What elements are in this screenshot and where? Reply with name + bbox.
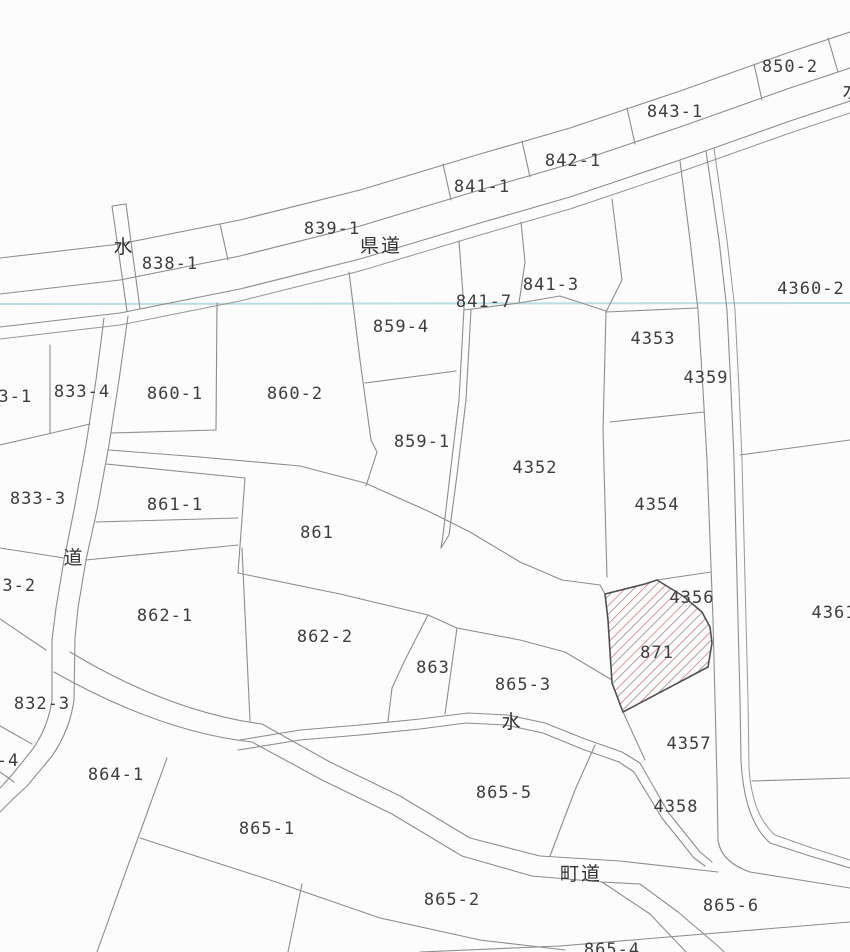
label-865-6: 865-6 [703, 896, 759, 916]
label-839-1: 839-1 [304, 219, 360, 239]
label-862-2: 862-2 [297, 627, 353, 647]
label-4358: 4358 [654, 797, 699, 817]
label-833-3: 833-3 [10, 489, 66, 509]
label-4352: 4352 [513, 458, 558, 478]
label-860-2: 860-2 [267, 384, 323, 404]
label-water-corner: 水 [842, 80, 850, 102]
label-841-7: 841-7 [456, 292, 512, 312]
label-833-1: 833-1 [0, 387, 32, 407]
label-833-2: 833-2 [0, 576, 36, 596]
label-865-4: 865-4 [584, 940, 640, 952]
label-kendo: 県道 [360, 235, 402, 257]
label-chodo: 町道 [560, 863, 602, 885]
label-841-3: 841-3 [523, 275, 579, 295]
cyan-reference-line [0, 303, 850, 304]
cadastral-map[interactable]: 850-2843-1842-1841-1839-1838-1水県道841-784… [0, 0, 850, 952]
label-water-channel: 水 [501, 711, 522, 733]
label-4359: 4359 [684, 368, 729, 388]
label-833-4: 833-4 [54, 382, 110, 402]
label-864-1: 864-1 [88, 765, 144, 785]
label-4356: 4356 [670, 588, 715, 608]
label-4361: 4361 [812, 603, 850, 623]
label-michi: 道 [63, 547, 84, 569]
label-841-1: 841-1 [454, 177, 510, 197]
label-4354: 4354 [635, 495, 680, 515]
label-4360-2: 4360-2 [777, 279, 844, 299]
label-859-1: 859-1 [394, 432, 450, 452]
label-4357: 4357 [667, 734, 712, 754]
label-859-4: 859-4 [373, 317, 429, 337]
map-background [0, 0, 850, 952]
label-865-3: 865-3 [495, 675, 551, 695]
label-865-5: 865-5 [476, 783, 532, 803]
label-water-strip: 水 [113, 236, 134, 258]
label-842-1: 842-1 [545, 151, 601, 171]
label-832-3: 832-3 [14, 694, 70, 714]
label-860-1: 860-1 [147, 384, 203, 404]
label-865-1: 865-1 [239, 819, 295, 839]
label-871: 871 [640, 643, 674, 663]
label-838-1: 838-1 [142, 254, 198, 274]
label-865-2: 865-2 [424, 890, 480, 910]
label-843-1: 843-1 [647, 102, 703, 122]
label-832-4: -4 [0, 751, 19, 771]
label-4353: 4353 [631, 329, 676, 349]
label-861: 861 [300, 523, 334, 543]
label-850-2: 850-2 [762, 57, 818, 77]
label-862-1: 862-1 [137, 606, 193, 626]
label-863: 863 [416, 658, 450, 678]
label-861-1: 861-1 [147, 495, 203, 515]
map-canvas: 850-2843-1842-1841-1839-1838-1水県道841-784… [0, 0, 850, 952]
